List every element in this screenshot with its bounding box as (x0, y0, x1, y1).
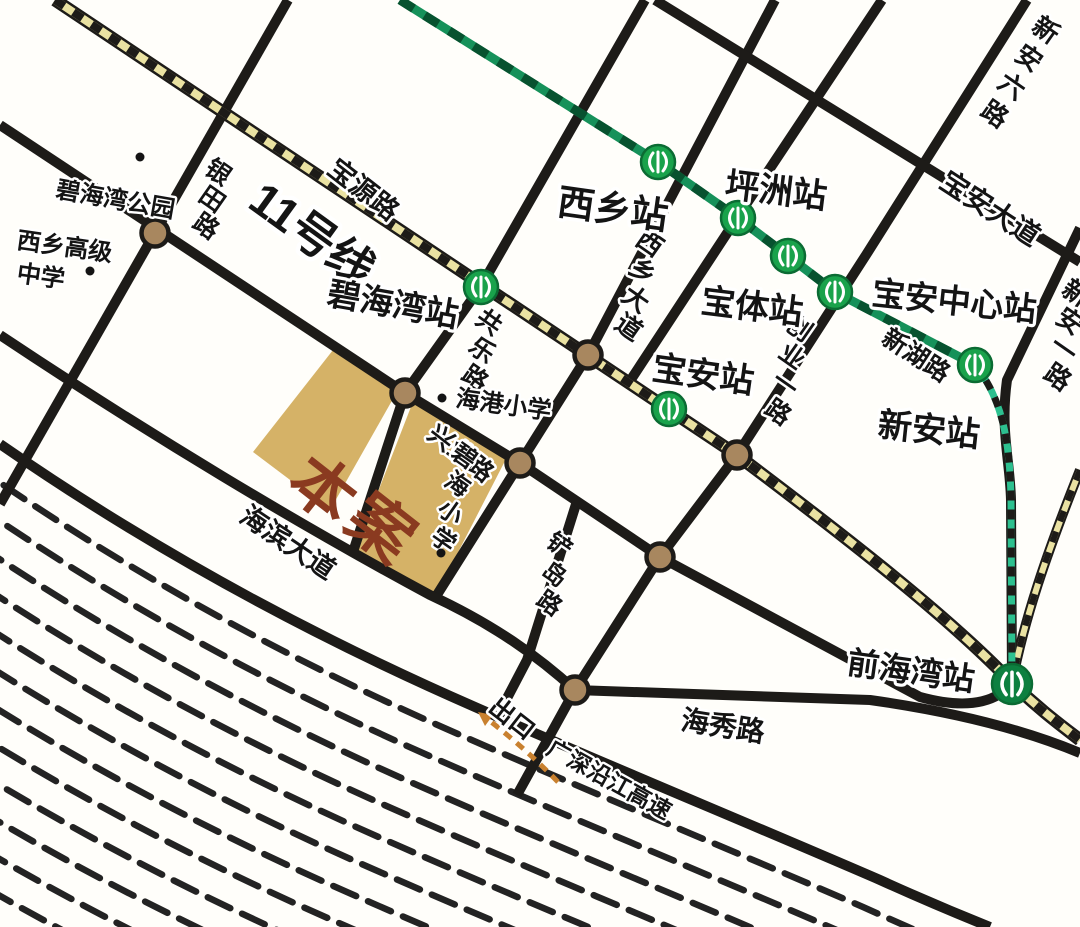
label-xinan-6th-road: 新安六路 (976, 10, 1066, 134)
junction-dot (647, 544, 674, 571)
station-label-bihaiwan: 碧海湾站 (325, 274, 461, 333)
station-label-xinan: 新安站 (876, 406, 981, 454)
junction-dot (392, 380, 419, 407)
junction-dot (142, 220, 169, 247)
metro-icon-qianhaiwan (992, 664, 1032, 704)
metro-icon-baoan-center (818, 275, 852, 309)
metro-icon-bihaiwan (464, 270, 498, 304)
label-xixiang-high-school: 中学 (15, 259, 66, 293)
label-haixiu-road: 海秀路 (679, 704, 768, 748)
bihaiwan-park-dot (136, 153, 145, 162)
label-bihaiwan-park: 碧海湾公园 (53, 175, 177, 224)
label-yintian-road-char: 路 (188, 208, 225, 246)
label-xinan-1st-road-char: 路 (1039, 357, 1078, 397)
junction-dot (724, 442, 751, 469)
metro-icon-baoti (771, 239, 805, 273)
metro-icon-baoan (652, 392, 686, 426)
metro-icon-xixiang (641, 145, 675, 179)
xixiang-high-school-dot (86, 267, 95, 276)
label-baoan-avenue: 宝安大道 (935, 164, 1046, 252)
label-chandao-road: 铲岛路 (532, 528, 577, 622)
bihai-primary-school-dot (437, 549, 446, 558)
haigang-primary-school-dot (438, 394, 447, 403)
junction-dot (562, 677, 589, 704)
label-chandao-road-char: 岛 (537, 556, 573, 593)
station-label-baoti: 宝体站 (699, 282, 805, 332)
location-map: 宝源路宝安大道新湖路兴业路海滨大道广深沿江高速海秀路银田路共乐路西乡大道创业一路… (0, 0, 1080, 927)
metro-icon-xinan (958, 348, 992, 382)
map-canvas: 宝源路宝安大道新湖路兴业路海滨大道广深沿江高速海秀路银田路共乐路西乡大道创业一路… (0, 0, 1080, 927)
station-label-xixiang: 西乡站 (555, 181, 671, 237)
label-chuangye-1st-road-char: 路 (760, 394, 797, 432)
label-haigang-primary-school: 海港小学 (454, 384, 553, 425)
junction-dot (575, 342, 602, 369)
junction-dot (507, 450, 534, 477)
